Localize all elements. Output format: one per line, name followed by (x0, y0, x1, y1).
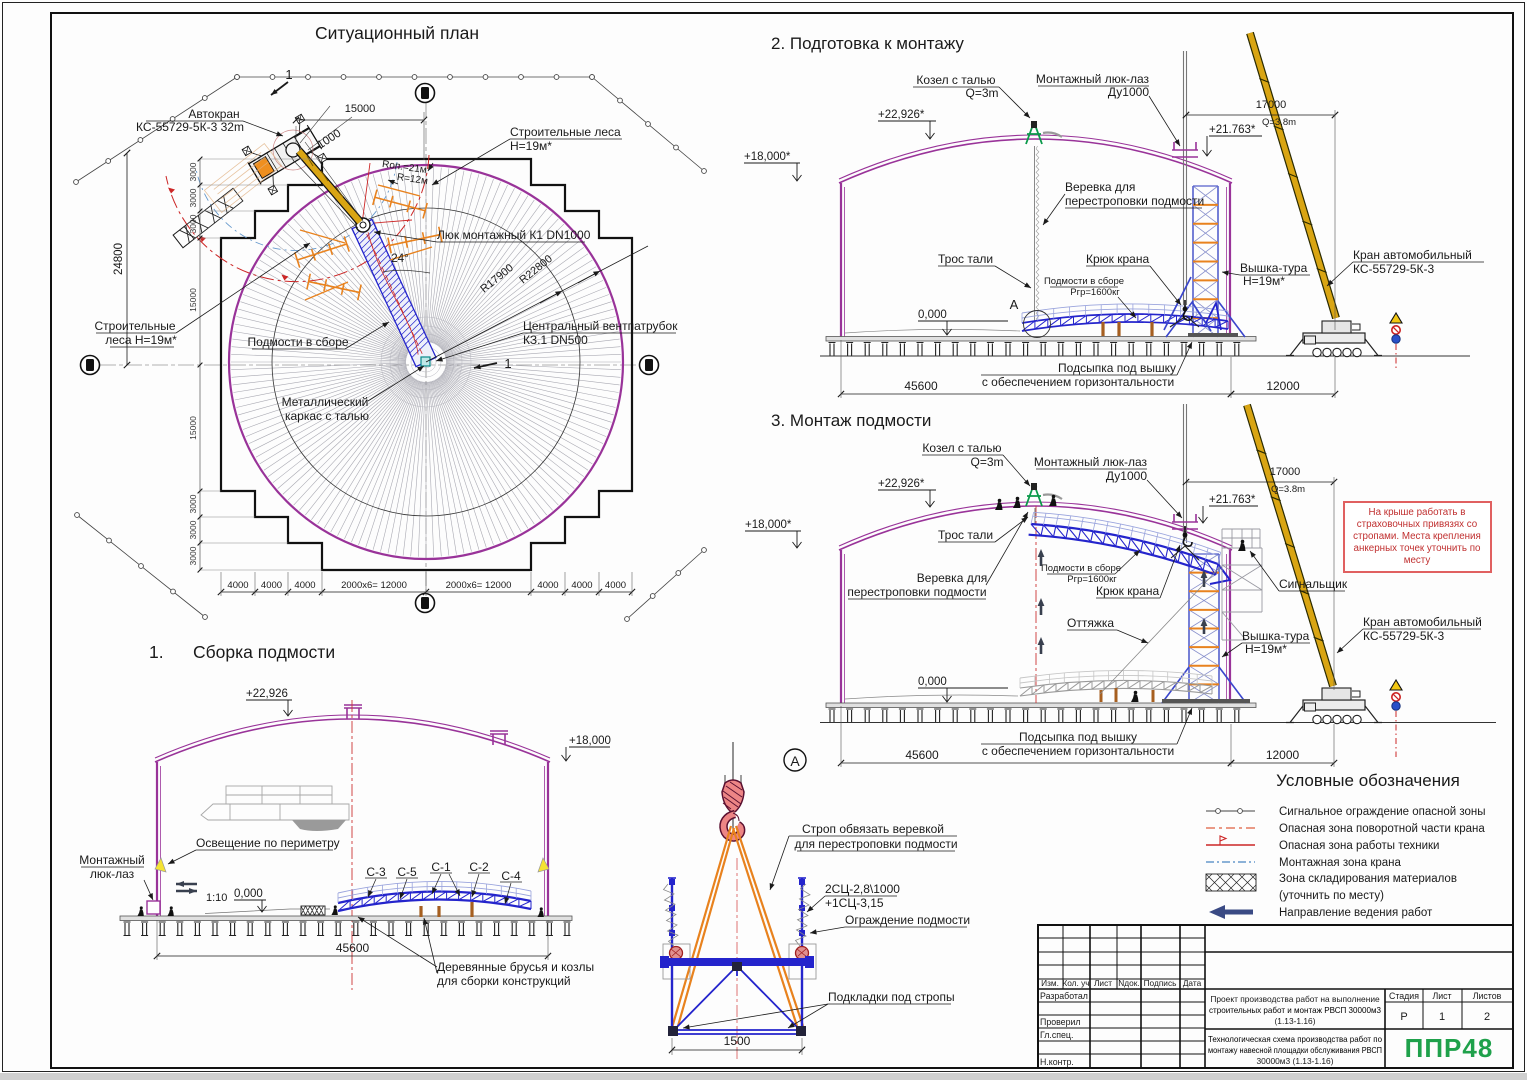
svg-text:с обеспечением горизонтальност: с обеспечением горизонтальности (982, 375, 1174, 389)
svg-text:17000: 17000 (1256, 99, 1287, 111)
svg-text:Зона складирования материалов: Зона складирования материалов (1279, 873, 1457, 885)
svg-text:Лист: Лист (1432, 991, 1451, 1001)
svg-text:3. Монтаж подмости: 3. Монтаж подмости (771, 411, 931, 430)
svg-text:Люк монтажный К1 DN1000: Люк монтажный К1 DN1000 (437, 228, 591, 242)
svg-text:4000: 4000 (261, 580, 282, 591)
svg-text:стропами. Места крепления: стропами. Места крепления (1353, 531, 1481, 542)
svg-text:Ситуационный план: Ситуационный план (315, 23, 479, 43)
svg-text:0,000: 0,000 (918, 676, 947, 688)
svg-text:Освещение по периметру: Освещение по периметру (196, 836, 340, 850)
svg-text:Подпись: Подпись (1144, 978, 1177, 988)
svg-text:Кран автомобильный: Кран автомобильный (1353, 248, 1472, 262)
svg-text:А: А (790, 753, 800, 769)
svg-text:для перестроповки подмости: для перестроповки подмости (794, 837, 957, 851)
svg-text:С-2: С-2 (469, 860, 489, 874)
svg-text:Р: Р (1400, 1011, 1407, 1023)
svg-text:каркас с талью: каркас с талью (285, 409, 369, 423)
svg-text:1.: 1. (149, 642, 164, 662)
svg-text:+22,926*: +22,926* (878, 109, 925, 121)
svg-text:Монтажный: Монтажный (79, 853, 144, 867)
svg-text:строительных работ и монтаж РВ: строительных работ и монтаж РВСП 30000м3 (1209, 1005, 1381, 1015)
svg-text:2000x6= 12000: 2000x6= 12000 (341, 580, 407, 591)
svg-text:Q=3.8m: Q=3.8m (1271, 484, 1305, 495)
svg-text:Q=3m: Q=3m (965, 86, 998, 100)
svg-text:Подкладки под стропы: Подкладки под стропы (828, 990, 955, 1004)
svg-text:+18,000*: +18,000* (744, 151, 791, 163)
svg-text:Технологическая схема производ: Технологическая схема производства работ… (1208, 1034, 1382, 1044)
svg-text:Ргр=1600кг: Ргр=1600кг (1070, 287, 1120, 298)
svg-text:3000: 3000 (188, 520, 198, 539)
svg-text:КС-55729-5К-3 32m: КС-55729-5К-3 32m (136, 120, 244, 134)
svg-text:+18,000*: +18,000* (745, 519, 792, 531)
svg-text:Металлический: Металлический (282, 395, 369, 409)
svg-text:Кран автомобильный: Кран автомобильный (1363, 615, 1482, 629)
svg-text:Гл.спец.: Гл.спец. (1040, 1030, 1073, 1040)
svg-text:С-4: С-4 (501, 869, 521, 883)
svg-text:Условные обозначения: Условные обозначения (1276, 771, 1460, 790)
svg-text:1: 1 (1439, 1011, 1445, 1023)
svg-text:для сборки конструкций: для сборки конструкций (437, 974, 571, 988)
svg-text:4000: 4000 (571, 580, 592, 591)
svg-text:2: 2 (1484, 1011, 1490, 1023)
svg-text:3000: 3000 (188, 188, 198, 207)
svg-text:12000: 12000 (1266, 748, 1300, 762)
svg-text:страховочных привязях со: страховочных привязях со (1357, 519, 1478, 530)
svg-text:Ду1000: Ду1000 (1106, 469, 1147, 483)
svg-text:С-1: С-1 (431, 860, 451, 874)
svg-text:КС-55729-5К-3: КС-55729-5К-3 (1363, 629, 1445, 643)
svg-text:Строп обвязать веревкой: Строп обвязать веревкой (802, 822, 944, 836)
svg-text:Проект производства работ на в: Проект производства работ на выполнение (1210, 994, 1380, 1004)
svg-text:КС-55729-5К-3: КС-55729-5К-3 (1353, 262, 1435, 276)
svg-text:Строительные: Строительные (94, 319, 175, 333)
svg-text:15000: 15000 (345, 103, 376, 115)
svg-text:С-3: С-3 (366, 865, 386, 879)
svg-text:3000: 3000 (188, 546, 198, 565)
svg-text:Проверил: Проверил (1040, 1017, 1081, 1027)
svg-text:месту: месту (1404, 555, 1431, 566)
svg-text:+22,926*: +22,926* (878, 478, 925, 490)
svg-text:Разработал: Разработал (1040, 991, 1088, 1001)
svg-text:4000: 4000 (537, 580, 558, 591)
svg-text:45600: 45600 (904, 379, 938, 393)
svg-text:Козел с талью: Козел с талью (922, 441, 1001, 455)
svg-text:Монтажный люк-лаз: Монтажный люк-лаз (1034, 455, 1148, 469)
svg-text:0,000: 0,000 (918, 309, 947, 321)
svg-text:Ду1000: Ду1000 (1108, 85, 1149, 99)
svg-text:4000: 4000 (227, 580, 248, 591)
svg-text:+18,000: +18,000 (569, 735, 611, 747)
svg-text:1:10: 1:10 (206, 892, 227, 904)
svg-text:Подмости в сборе: Подмости в сборе (1044, 276, 1124, 287)
svg-text:Изм.: Изм. (1041, 978, 1059, 988)
svg-text:Трос тали: Трос тали (938, 528, 993, 542)
svg-text:На крыше работать в: На крыше работать в (1369, 507, 1466, 518)
svg-text:Центральный вентпатрубок: Центральный вентпатрубок (523, 319, 678, 333)
svg-text:Монтажный люк-лаз: Монтажный люк-лаз (1036, 72, 1150, 86)
svg-text:24°: 24° (391, 253, 408, 265)
svg-text:3000: 3000 (188, 494, 198, 513)
svg-text:анкерных точек уточнить по: анкерных точек уточнить по (1354, 543, 1482, 554)
svg-text:3000: 3000 (188, 162, 198, 181)
svg-text:С-5: С-5 (397, 865, 417, 879)
svg-text:Автокран: Автокран (188, 107, 239, 121)
svg-text:с обеспечением горизонтальност: с обеспечением горизонтальности (982, 744, 1174, 758)
svg-text:+1СЦ-3,15: +1СЦ-3,15 (825, 896, 884, 910)
svg-text:Сигнальное ограждение опасной: Сигнальное ограждение опасной зоны (1279, 806, 1486, 818)
svg-text:+21.763*: +21.763* (1209, 124, 1256, 136)
svg-text:24800: 24800 (113, 243, 125, 275)
svg-text:+21.763*: +21.763* (1209, 494, 1256, 506)
svg-text:3000: 3000 (188, 214, 198, 233)
svg-text:Q=3m: Q=3m (970, 455, 1003, 469)
svg-text:Монтажная зона крана: Монтажная зона крана (1279, 857, 1402, 869)
svg-text:45600: 45600 (905, 748, 939, 762)
svg-text:Трос тали: Трос тали (938, 252, 993, 266)
svg-text:Подмости в сборе: Подмости в сборе (1041, 563, 1121, 574)
svg-text:Козел с талью: Козел с талью (916, 73, 995, 87)
svg-text:Веревка для: Веревка для (1065, 180, 1135, 194)
svg-text:КЗ.1 DN500: КЗ.1 DN500 (523, 333, 588, 347)
svg-text:монтажу навесной площадки обсл: монтажу навесной площадки обслуживания Р… (1208, 1045, 1382, 1055)
svg-text:Деревянные брусья и козлы: Деревянные брусья и козлы (437, 960, 594, 974)
svg-text:Н=19м*: Н=19м* (1243, 274, 1285, 288)
svg-text:2000x6= 12000: 2000x6= 12000 (446, 580, 512, 591)
svg-text:4000: 4000 (294, 580, 315, 591)
svg-text:Стадия: Стадия (1389, 991, 1419, 1001)
svg-text:15000: 15000 (188, 288, 198, 312)
svg-text:Ограждение подмости: Ограждение подмости (845, 913, 970, 927)
svg-text:Н=19м*: Н=19м* (1245, 642, 1287, 656)
svg-text:Вышка-тура: Вышка-тура (1240, 261, 1308, 275)
svg-text:Н.контр.: Н.контр. (1040, 1057, 1074, 1067)
svg-text:Подмости в сборе: Подмости в сборе (247, 335, 348, 349)
svg-text:ППР48: ППР48 (1405, 1033, 1494, 1063)
svg-text:Дата: Дата (1183, 978, 1202, 988)
svg-text:Подсыпка под вышку: Подсыпка под вышку (1058, 361, 1176, 375)
svg-text:17000: 17000 (1270, 466, 1301, 478)
svg-text:Опасная зона работы техники: Опасная зона работы техники (1279, 840, 1439, 852)
svg-text:Лист: Лист (1094, 978, 1112, 988)
svg-text:45600: 45600 (336, 941, 370, 955)
svg-text:Сборка подмости: Сборка подмости (193, 642, 335, 662)
svg-text:2СЦ-2,8\1000: 2СЦ-2,8\1000 (825, 882, 900, 896)
svg-text:Nдок.: Nдок. (1118, 978, 1139, 988)
svg-text:(1.13-1.16): (1.13-1.16) (1275, 1016, 1316, 1026)
svg-text:30000м3 (1.13-1.16): 30000м3 (1.13-1.16) (1257, 1056, 1334, 1066)
svg-text:перестроповки подмости: перестроповки подмости (847, 585, 986, 599)
svg-text:Q=3.8m: Q=3.8m (1262, 117, 1296, 128)
svg-text:H=19м*: H=19м* (510, 139, 552, 153)
svg-text:Крюк крана: Крюк крана (1096, 584, 1159, 598)
svg-text:1500: 1500 (724, 1034, 751, 1048)
svg-text:люк-лаз: люк-лаз (90, 867, 135, 881)
svg-text:+22,926: +22,926 (246, 688, 288, 700)
svg-text:1: 1 (285, 67, 292, 82)
svg-text:4000: 4000 (605, 580, 626, 591)
svg-text:Опасная зона поворотной части: Опасная зона поворотной части крана (1279, 823, 1485, 835)
svg-text:Листов: Листов (1473, 991, 1502, 1001)
svg-text:1: 1 (504, 356, 511, 371)
svg-text:Сигнальщик: Сигнальщик (1279, 577, 1348, 591)
svg-text:перестроповки подмости: перестроповки подмости (1065, 194, 1204, 208)
svg-text:леса H=19м*: леса H=19м* (105, 333, 177, 347)
svg-text:А: А (1010, 297, 1019, 312)
svg-text:(уточнить по месту): (уточнить по месту) (1279, 890, 1384, 902)
svg-text:2. Подготовка к монтажу: 2. Подготовка к монтажу (771, 34, 964, 53)
svg-text:15000: 15000 (188, 416, 198, 440)
svg-text:Кол. уч: Кол. уч (1062, 978, 1089, 988)
svg-text:Вышка-тура: Вышка-тура (1242, 629, 1310, 643)
svg-text:Оттяжка: Оттяжка (1067, 616, 1114, 630)
svg-text:12000: 12000 (1266, 379, 1300, 393)
svg-text:Подсыпка под вышку: Подсыпка под вышку (1019, 730, 1137, 744)
svg-text:Крюк крана: Крюк крана (1086, 252, 1149, 266)
svg-text:0,000: 0,000 (234, 888, 263, 900)
svg-text:Строительные леса: Строительные леса (510, 125, 621, 139)
svg-text:Направление ведения работ: Направление ведения работ (1279, 907, 1433, 919)
svg-text:Веревка для: Веревка для (917, 571, 987, 585)
